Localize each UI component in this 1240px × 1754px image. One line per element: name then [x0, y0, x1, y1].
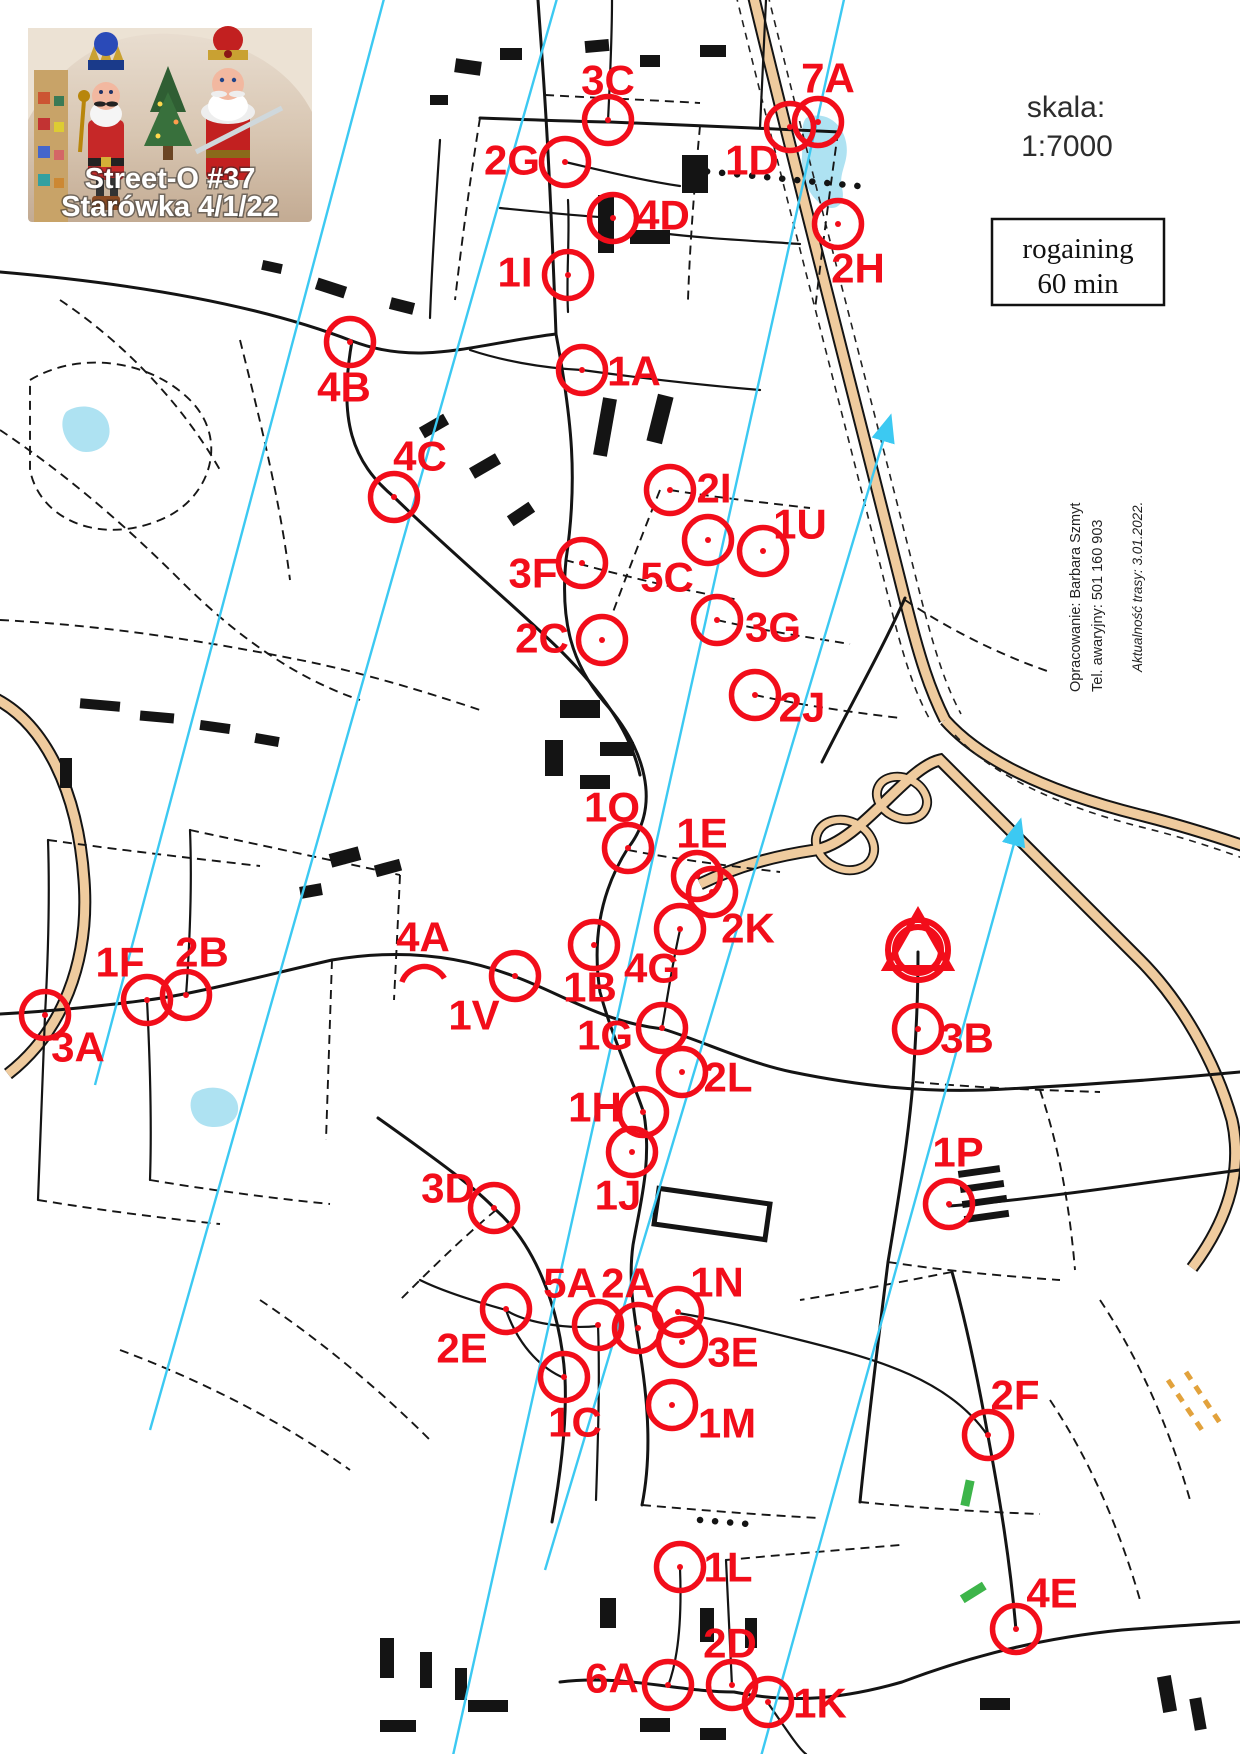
control-dot-1L — [677, 1564, 683, 1570]
control-dot-5C — [705, 537, 711, 543]
control-label-4G: 4G — [624, 945, 680, 992]
control-label-1P: 1P — [932, 1129, 983, 1176]
control-dot-2L — [679, 1069, 685, 1075]
control-dot-2K — [709, 889, 715, 895]
control-dot-1U — [760, 548, 766, 554]
control-dot-3F — [579, 560, 585, 566]
control-label-1F: 1F — [95, 939, 144, 986]
control-label-4B: 4B — [317, 364, 371, 411]
control-label-3B: 3B — [940, 1015, 994, 1062]
control-dot-2G — [562, 159, 568, 165]
control-label-1V: 1V — [448, 992, 499, 1039]
control-label-2B: 2B — [175, 929, 229, 976]
credits-block: Opracowanie: Barbara Szmyt Tel. awaryjny… — [1068, 502, 1145, 692]
orienteering-map-page: 3C2G7A1D4D1I2H4B1A4C2I1U3F5C2C3G2J1O1E2K… — [0, 0, 1240, 1754]
control-dot-4C — [391, 494, 397, 500]
control-label-4E: 4E — [1026, 1570, 1077, 1617]
control-label-5A: 5A — [543, 1260, 597, 1307]
control-dot-5A — [595, 1322, 601, 1328]
control-label-4C: 4C — [393, 433, 447, 480]
control-dot-4D — [610, 215, 616, 221]
event-photo: Street-O #37 Starówka 4/1/22 — [28, 26, 312, 223]
control-label-1K: 1K — [793, 1680, 847, 1727]
format-line2: 60 min — [1037, 268, 1119, 300]
control-label-2K: 2K — [721, 905, 775, 952]
control-dot-1C — [561, 1374, 567, 1380]
control-label-2L: 2L — [703, 1054, 752, 1101]
control-dot-1F — [144, 997, 150, 1003]
format-line1: rogaining — [1022, 233, 1133, 265]
control-label-2J: 2J — [779, 684, 826, 731]
control-label-3E: 3E — [707, 1329, 758, 1376]
control-label-1G: 1G — [577, 1012, 633, 1059]
control-label-1J: 1J — [595, 1172, 642, 1219]
control-label-4D: 4D — [636, 192, 690, 239]
control-dot-4E — [1013, 1626, 1019, 1632]
control-dot-2E — [503, 1306, 509, 1312]
control-arc-4A — [402, 966, 445, 982]
control-label-2H: 2H — [831, 245, 885, 292]
control-label-1E: 1E — [676, 810, 727, 857]
control-dot-2H — [835, 221, 841, 227]
control-label-4A: 4A — [396, 914, 450, 961]
scale-label: skala: — [1027, 91, 1105, 124]
control-label-6A: 6A — [585, 1655, 639, 1702]
control-dot-4B — [347, 339, 353, 345]
control-dot-3C — [605, 117, 611, 123]
control-label-1O: 1O — [584, 784, 640, 831]
control-dot-1I — [565, 272, 571, 278]
control-dot-1G — [659, 1025, 665, 1031]
control-dot-1J — [629, 1149, 635, 1155]
control-label-2G: 2G — [484, 137, 540, 184]
control-label-1N: 1N — [690, 1259, 744, 1306]
control-label-3F: 3F — [508, 550, 557, 597]
control-dot-3G — [714, 617, 720, 623]
control-dot-3A — [42, 1012, 48, 1018]
control-dot-1M — [669, 1402, 675, 1408]
control-dot-2I — [667, 487, 673, 493]
control-label-1I: 1I — [497, 249, 532, 296]
control-label-2D: 2D — [703, 1620, 757, 1667]
control-dot-2F — [985, 1432, 991, 1438]
scale-value: 1:7000 — [1021, 130, 1113, 163]
control-dot-4G — [677, 926, 683, 932]
control-label-3A: 3A — [51, 1024, 105, 1071]
control-dot-1N — [675, 1309, 681, 1315]
control-dot-3D — [491, 1205, 497, 1211]
control-points-layer: 3C2G7A1D4D1I2H4B1A4C2I1U3F5C2C3G2J1O1E2K… — [22, 55, 1078, 1727]
control-dot-1P — [946, 1201, 952, 1207]
credit-phone: Tel. awaryjny: 501 160 903 — [1090, 520, 1106, 693]
control-label-7A: 7A — [801, 55, 855, 102]
control-label-3D: 3D — [421, 1165, 475, 1212]
control-dot-1A — [579, 367, 585, 373]
control-label-1U: 1U — [773, 501, 827, 548]
photo-title-line2: Starówka 4/1/22 — [61, 191, 279, 223]
control-dot-1H — [640, 1109, 646, 1115]
control-label-1B: 1B — [563, 964, 617, 1011]
control-label-1H: 1H — [568, 1084, 622, 1131]
control-dot-1K — [765, 1699, 771, 1705]
credit-author: Opracowanie: Barbara Szmyt — [1068, 503, 1084, 692]
control-label-2A: 2A — [601, 1260, 655, 1307]
control-dot-2C — [599, 637, 605, 643]
control-dot-2J — [752, 692, 758, 698]
credit-date: Aktualność trasy: 3.01.2022. — [1130, 502, 1145, 673]
control-label-2I: 2I — [696, 465, 731, 512]
control-dot-1B — [591, 942, 597, 948]
control-label-1C: 1C — [548, 1399, 602, 1446]
control-label-5C: 5C — [640, 554, 694, 601]
control-dot-1O — [625, 845, 631, 851]
control-label-3G: 3G — [745, 604, 801, 651]
control-dot-6A — [665, 1682, 671, 1688]
control-label-1D: 1D — [725, 137, 779, 184]
control-dot-3E — [679, 1339, 685, 1345]
scale-block: skala: 1:7000 — [1021, 91, 1113, 163]
control-label-1A: 1A — [607, 348, 661, 395]
control-label-1M: 1M — [698, 1400, 756, 1447]
control-label-2F: 2F — [990, 1372, 1039, 1419]
control-dot-2D — [729, 1682, 735, 1688]
street-o-map: 3C2G7A1D4D1I2H4B1A4C2I1U3F5C2C3G2J1O1E2K… — [0, 0, 1240, 1754]
control-label-3C: 3C — [581, 57, 635, 104]
format-box: rogaining 60 min — [992, 219, 1164, 305]
control-dot-3B — [915, 1026, 921, 1032]
control-label-1L: 1L — [703, 1544, 752, 1591]
control-dot-2A — [635, 1325, 641, 1331]
control-label-2C: 2C — [515, 615, 569, 662]
control-dot-1D — [787, 124, 793, 130]
control-dot-2B — [183, 992, 189, 998]
control-label-2E: 2E — [436, 1325, 487, 1372]
control-dot-1V — [512, 973, 518, 979]
